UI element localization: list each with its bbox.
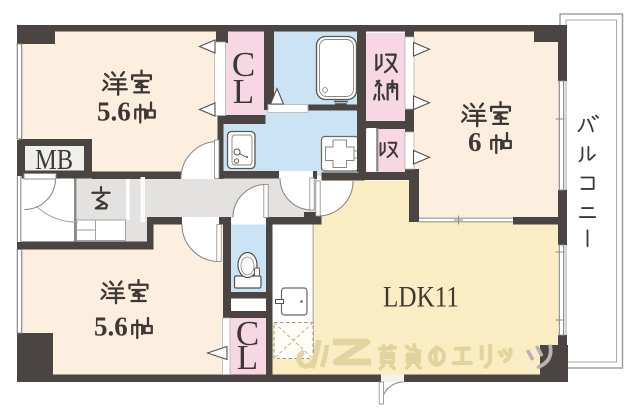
- svg-text:MB: MB: [35, 144, 73, 176]
- svg-text:5.6: 5.6: [94, 312, 128, 342]
- svg-text:L: L: [233, 72, 254, 111]
- svg-text:6: 6: [468, 127, 482, 157]
- svg-text:LDK11: LDK11: [383, 281, 459, 314]
- svg-text:5.6: 5.6: [97, 97, 131, 127]
- svg-text:L: L: [237, 338, 258, 377]
